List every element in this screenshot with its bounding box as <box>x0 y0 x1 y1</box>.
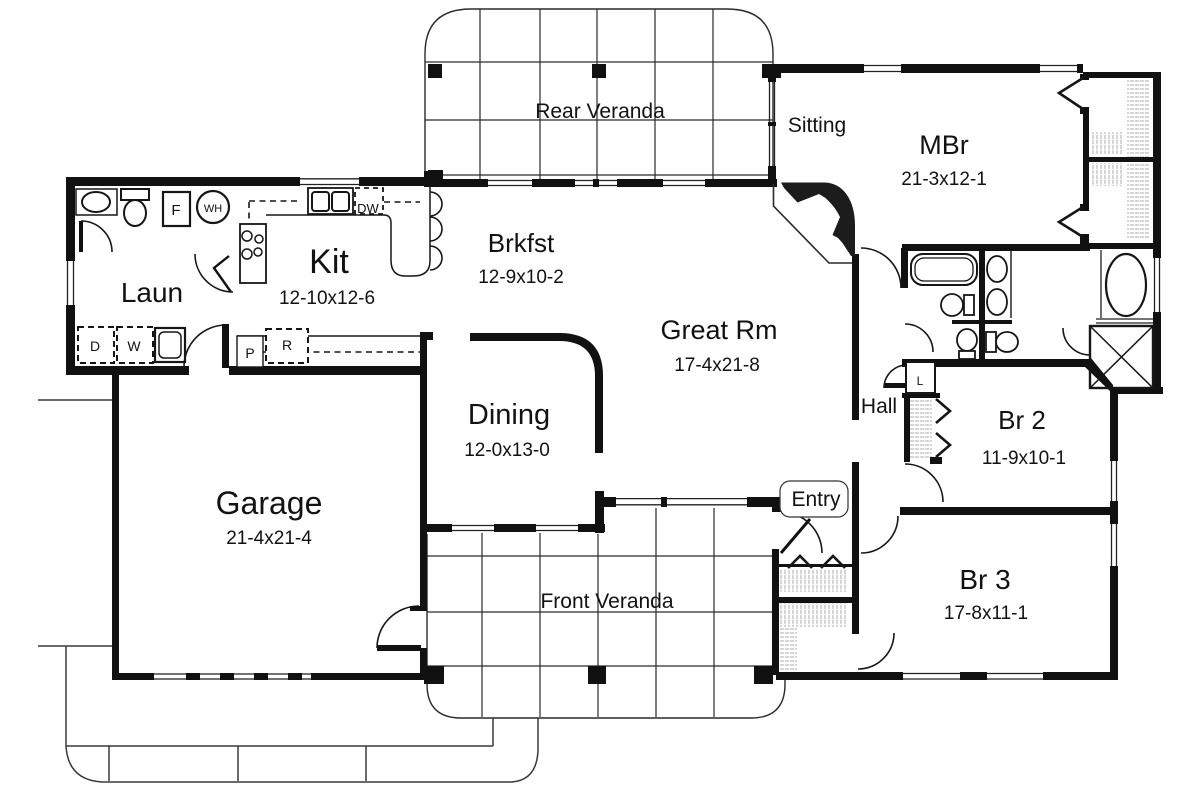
svg-text:Br 2: Br 2 <box>998 405 1046 435</box>
svg-text:21-3x12-1: 21-3x12-1 <box>901 169 987 190</box>
svg-text:11-9x10-1: 11-9x10-1 <box>982 448 1066 469</box>
svg-text:R: R <box>282 337 292 353</box>
svg-text:D: D <box>90 338 100 354</box>
svg-text:Brkfst: Brkfst <box>488 228 555 258</box>
svg-text:Laun: Laun <box>121 277 183 308</box>
svg-text:12-0x13-0: 12-0x13-0 <box>464 440 550 461</box>
svg-text:12-9x10-2: 12-9x10-2 <box>478 267 564 288</box>
svg-text:L: L <box>917 374 924 388</box>
svg-text:Br 3: Br 3 <box>959 564 1010 595</box>
svg-text:17-4x21-8: 17-4x21-8 <box>674 355 760 376</box>
svg-text:12-10x12-6: 12-10x12-6 <box>279 288 375 309</box>
svg-text:F: F <box>171 202 180 219</box>
svg-text:DW: DW <box>357 201 379 216</box>
svg-text:17-8x11-1: 17-8x11-1 <box>944 603 1028 624</box>
svg-text:WH: WH <box>204 203 222 215</box>
svg-text:Rear Veranda: Rear Veranda <box>535 100 665 123</box>
svg-text:Garage: Garage <box>216 485 323 521</box>
svg-text:Hall: Hall <box>861 395 897 418</box>
svg-text:Kit: Kit <box>309 243 349 281</box>
svg-text:Front Veranda: Front Veranda <box>540 590 673 613</box>
svg-text:Sitting: Sitting <box>788 114 846 137</box>
svg-text:Entry: Entry <box>791 488 841 511</box>
svg-text:21-4x21-4: 21-4x21-4 <box>226 528 312 549</box>
svg-text:Dining: Dining <box>468 399 550 431</box>
svg-text:P: P <box>245 345 254 361</box>
svg-text:MBr: MBr <box>919 130 969 160</box>
svg-text:W: W <box>127 338 141 354</box>
svg-text:Great Rm: Great Rm <box>660 315 777 345</box>
